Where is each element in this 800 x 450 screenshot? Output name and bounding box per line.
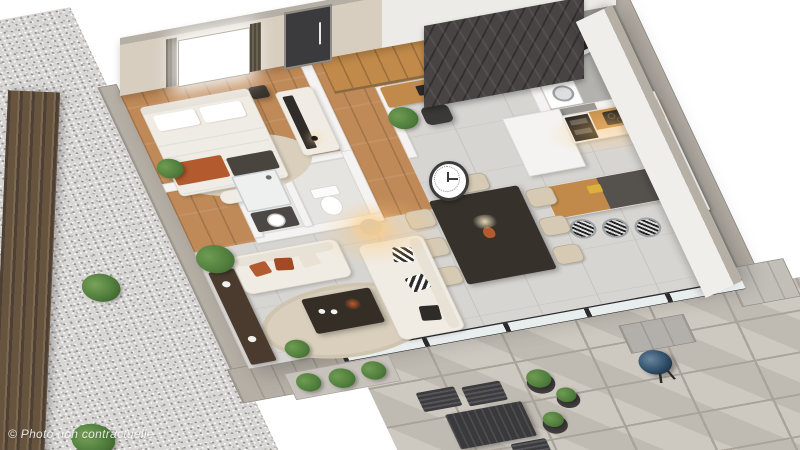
candle [318, 308, 327, 314]
microwave-window [574, 127, 593, 135]
oven-window [569, 118, 588, 126]
clock-hour-hand [447, 172, 449, 182]
rust-pillow [274, 258, 295, 271]
clock-minute-hand [447, 178, 458, 180]
bar-stool [598, 216, 632, 240]
decor-vase [221, 281, 232, 288]
black-pillow [418, 305, 442, 321]
wall-clock [429, 161, 469, 201]
dining-chair [537, 214, 572, 237]
planter-grass [325, 366, 359, 390]
hob-ring [607, 113, 617, 120]
decor-vase [247, 335, 258, 342]
kitchen-island [541, 168, 664, 220]
watermark: © Photo non contractuelle [8, 427, 154, 441]
sink-bowl [265, 212, 289, 228]
toilet-bowl [317, 194, 347, 217]
curtain-left [166, 38, 177, 88]
door-handle [319, 22, 321, 44]
bar-stool [631, 215, 665, 239]
planter-grass [358, 359, 390, 381]
orange-flowers [342, 297, 363, 311]
washer-door [549, 84, 577, 103]
planter-grass [293, 371, 325, 393]
front-door [284, 4, 332, 70]
cream-pillow [298, 252, 322, 268]
patterned-pillow [392, 247, 415, 262]
floorplan-render: © Photo non contractuelle [0, 0, 800, 450]
candle [330, 309, 339, 315]
dining-chair [551, 243, 586, 266]
curtain-right [250, 22, 261, 72]
pampas-bouquet [469, 213, 501, 231]
shower-drain [265, 175, 273, 180]
